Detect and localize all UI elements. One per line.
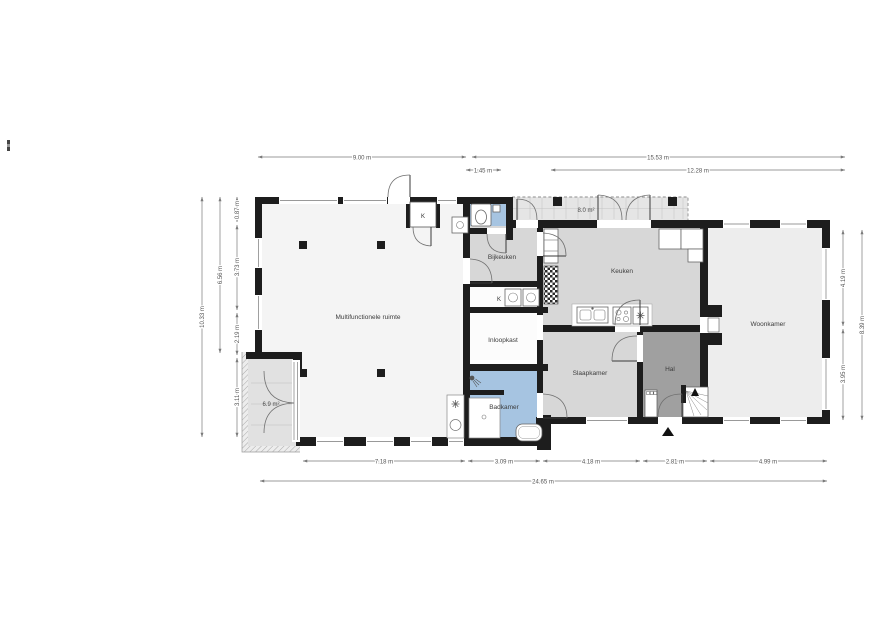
dim-right-419: 4.19 m (841, 269, 847, 287)
dim-bottom-281: 2.81 m (666, 460, 684, 466)
floorplan-page: Multifunctionele ruimte Bijkeuken Keuken… (0, 0, 872, 617)
label-hal: Hal (665, 366, 675, 373)
edge-artifact-mark (7, 140, 10, 151)
snowflake-icon (452, 400, 460, 408)
label-terrace-area: 8.0 m² (577, 208, 594, 214)
dimensions-left: 10.33 m 6.56 m 0.87 m 3.73 m 2.19 m 3.11… (200, 197, 241, 437)
hall-cabinet (645, 390, 657, 417)
label-closet-k-laundry: K (497, 297, 501, 303)
dim-left-311: 3.11 m (235, 388, 241, 406)
dimensions-bottom: 7.18 m 3.09 m 4.18 m 2.81 m 4.99 m 24.65… (260, 460, 827, 486)
dimensions-top: 9.00 m 15.53 m 1.45 m 12.28 m (258, 156, 845, 175)
dim-left-373: 3.73 m (235, 258, 241, 276)
dim-top-1553: 15.53 m (647, 156, 669, 162)
stove-icon (613, 307, 631, 324)
dim-left-087: 0.87 m (235, 201, 241, 219)
dim-right-total: 8.39 m (860, 316, 866, 334)
label-closet-k-top: K (421, 214, 425, 220)
kitchen-sink-icon (577, 307, 608, 323)
floorplan-svg: Multifunctionele ruimte Bijkeuken Keuken… (0, 0, 872, 617)
dim-bottom-309: 3.09 m (495, 460, 513, 466)
dim-top-145: 1.45 m (474, 169, 492, 175)
dim-bottom-718: 7.18 m (375, 460, 393, 466)
porch-door-frame (292, 360, 300, 442)
bathtub-icon (516, 424, 542, 441)
hall-living-door-leaf (708, 318, 719, 332)
label-bijkeuken: Bijkeuken (488, 254, 517, 261)
label-porch-area: 6.9 m² (262, 402, 279, 408)
hand-basin-icon (452, 217, 468, 233)
dimensions-right: 4.19 m 3.95 m 8.39 m (841, 230, 866, 420)
dim-top-9: 9.00 m (353, 156, 371, 162)
room-fills (247, 197, 824, 448)
dim-left-656: 6.56 m (218, 266, 224, 284)
dim-bottom-499: 4.99 m (759, 460, 777, 466)
washer-icon (505, 289, 521, 306)
dim-left-219: 2.19 m (235, 325, 241, 343)
label-multifunctionele-ruimte: Multifunctionele ruimte (335, 314, 400, 321)
dim-top-1228: 12.28 m (687, 169, 709, 175)
utility-fixture (447, 395, 464, 438)
label-woonkamer: Woonkamer (751, 321, 787, 328)
stairs (681, 385, 708, 417)
label-inloopkast: Inloopkast (488, 337, 518, 344)
entrance-arrow-icon (662, 427, 674, 436)
dim-right-395: 3.95 m (841, 365, 847, 383)
label-badkamer: Badkamer (489, 404, 519, 411)
fridge-icon (544, 229, 558, 304)
label-slaapkamer: Slaapkamer (573, 370, 609, 377)
basin-icon (450, 420, 461, 431)
dryer-icon (523, 289, 539, 306)
dim-bottom-418: 4.18 m (582, 460, 600, 466)
dim-bottom-total: 24.65 m (532, 480, 554, 486)
dim-left-total: 10.33 m (200, 306, 206, 328)
label-keuken: Keuken (611, 268, 633, 275)
